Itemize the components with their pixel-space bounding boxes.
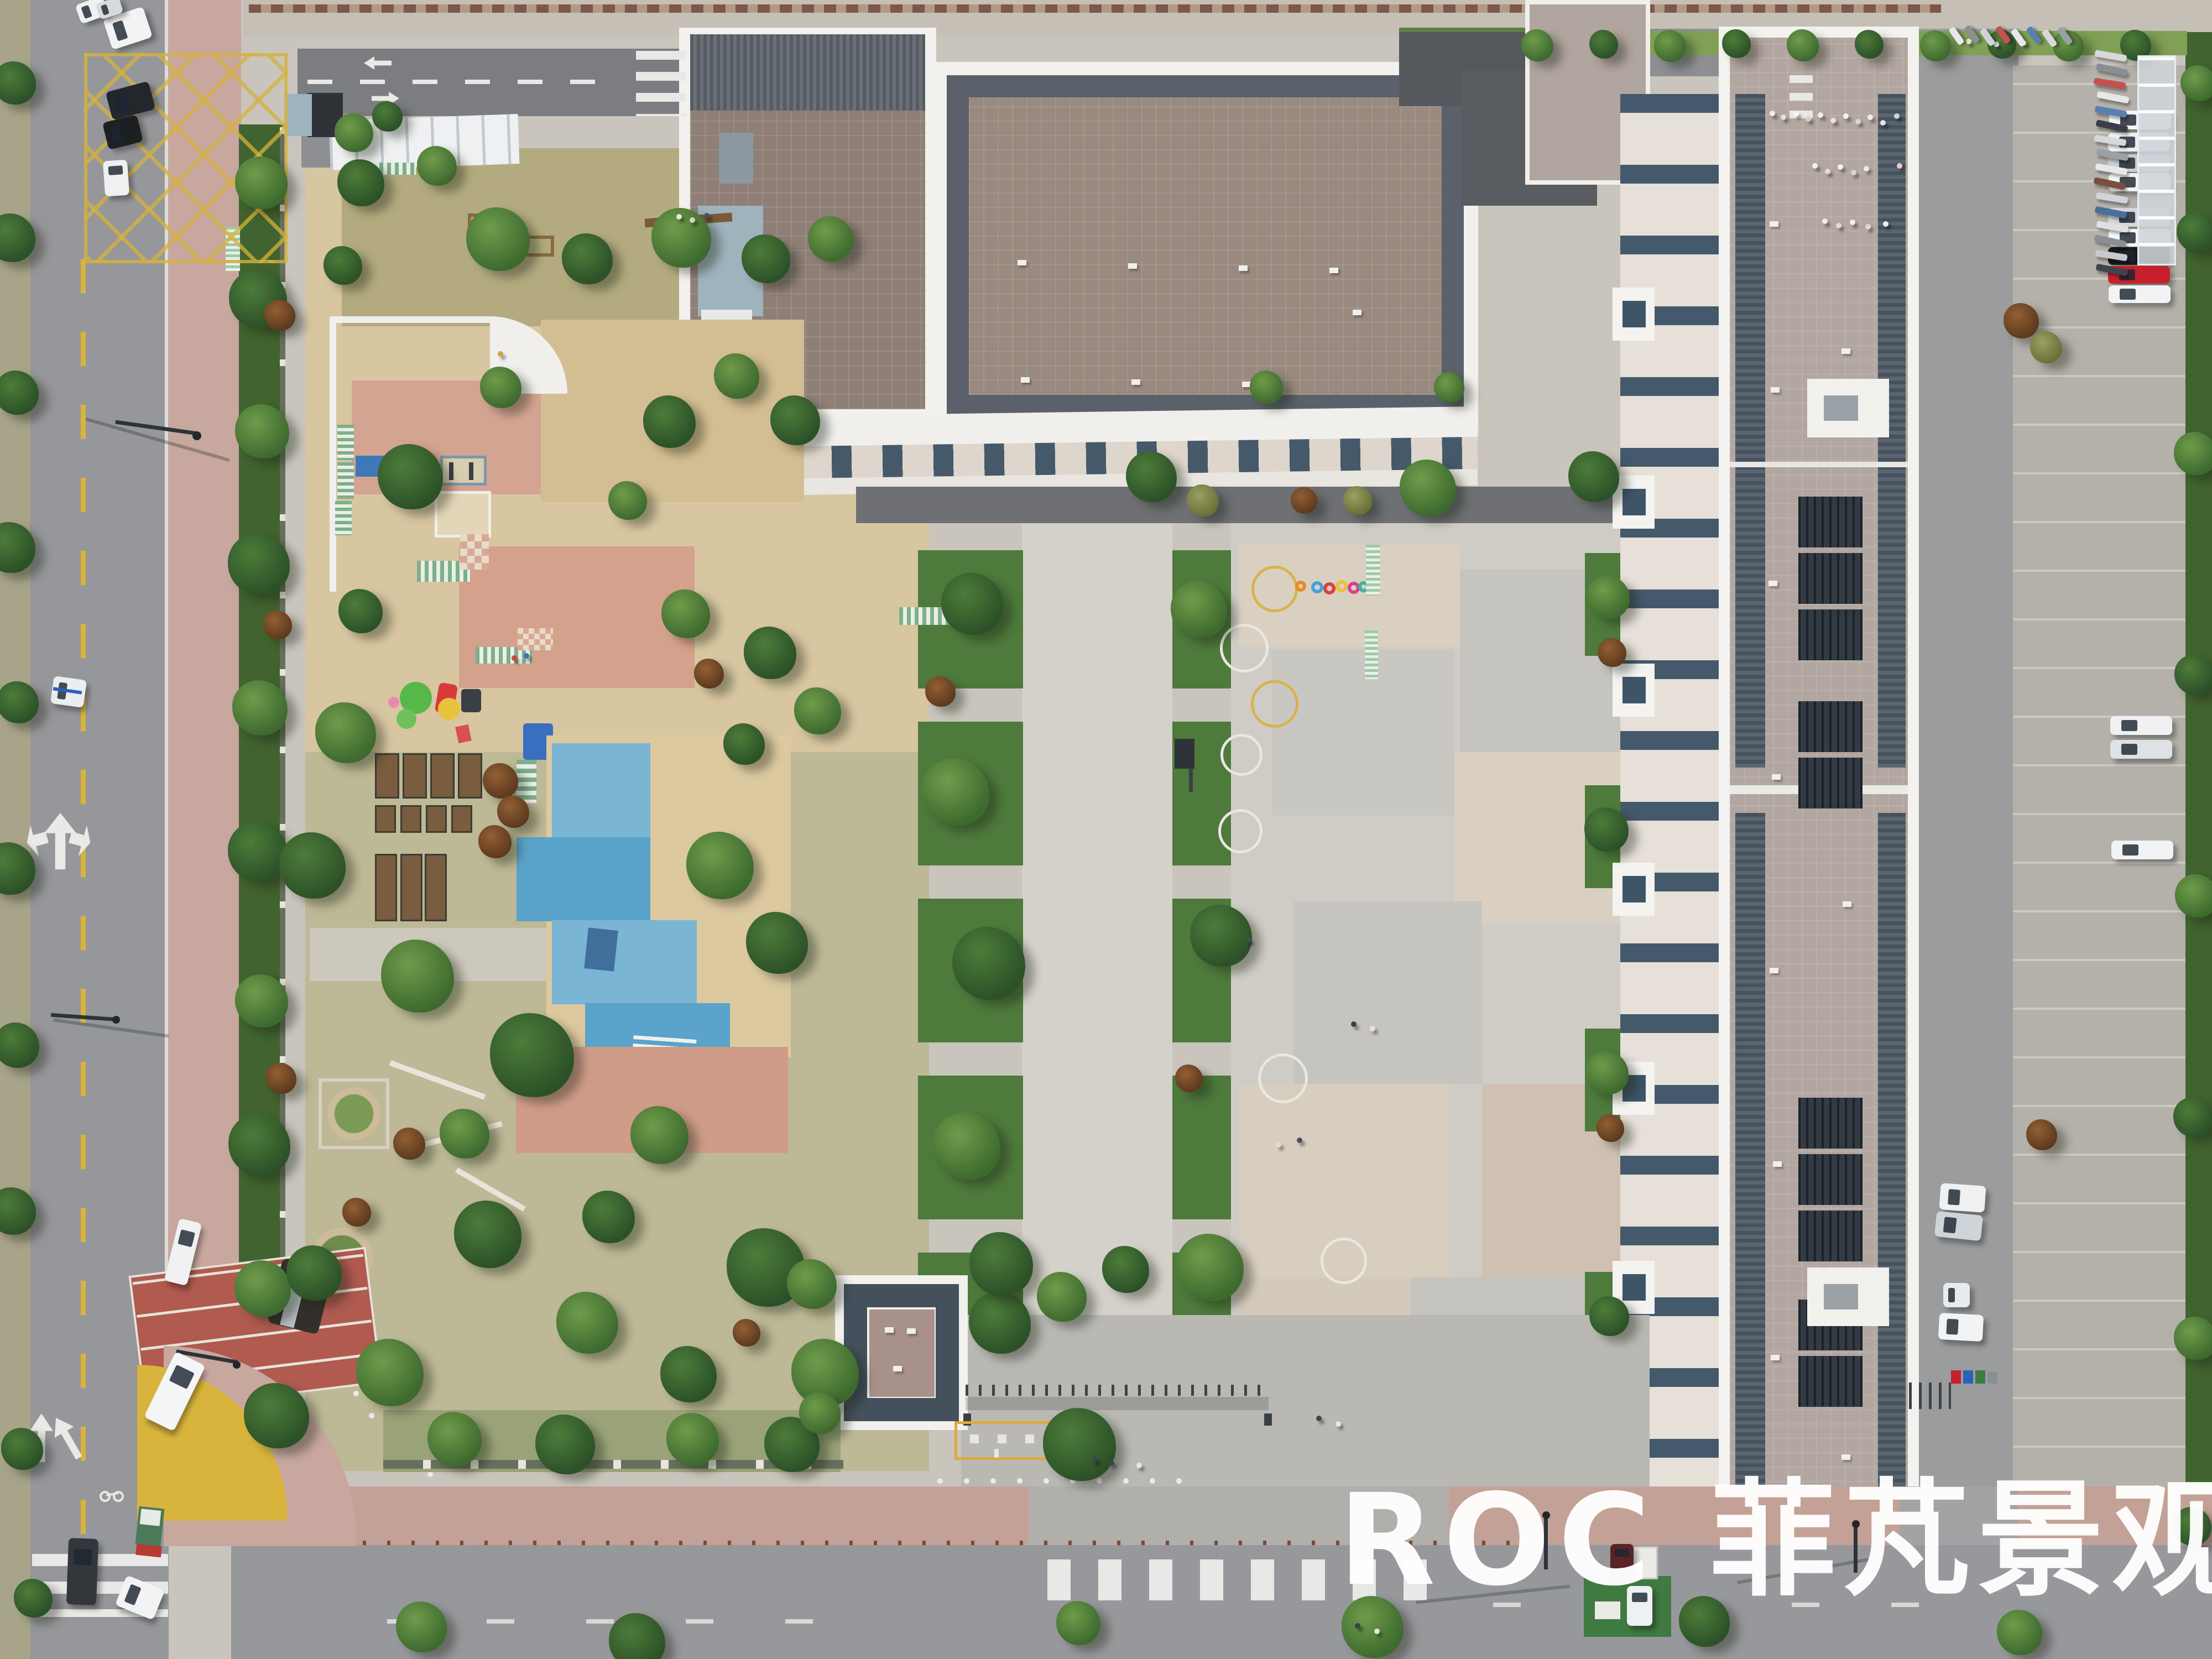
garden-tree <box>440 1109 489 1159</box>
car-windshield <box>124 1584 142 1605</box>
person <box>1880 120 1886 126</box>
car-windshield <box>112 20 128 41</box>
car-windshield <box>108 165 123 175</box>
recycle-bin-green <box>1975 1370 1985 1384</box>
swing-bar <box>449 462 453 480</box>
solar-panel <box>1798 1154 1863 1205</box>
tower-bay-glass <box>1623 876 1646 902</box>
recycle-bin-red <box>1951 1370 1961 1384</box>
car-windshield <box>169 1365 195 1389</box>
striped-mat-roll <box>337 462 354 499</box>
parked-car-white <box>1939 1183 1986 1213</box>
top-road-crossing <box>636 51 686 116</box>
hedge-tree <box>235 974 288 1027</box>
striped-mat-roll <box>379 163 416 175</box>
planter-bed <box>400 805 421 833</box>
child <box>512 655 517 661</box>
parked-car-white <box>2109 285 2171 303</box>
tower-bay-glass <box>1623 489 1646 515</box>
garden-tree <box>417 146 457 186</box>
painted-circle-yellow <box>1251 566 1298 612</box>
person <box>676 214 682 220</box>
person <box>1850 220 1855 225</box>
roof-vent <box>1771 1355 1780 1360</box>
roof-vent <box>1353 310 1361 315</box>
person <box>1351 1021 1357 1027</box>
strip-tree <box>666 1413 719 1465</box>
play-ring-yellow <box>1335 580 1348 592</box>
car-windshield <box>1948 1288 1955 1302</box>
shrub-brown <box>1598 638 1626 667</box>
bollard <box>1123 1478 1129 1484</box>
gate-tree <box>1102 1246 1149 1293</box>
solar-panel <box>1798 701 1863 752</box>
garden-tree <box>742 234 790 283</box>
blue-play-zone <box>552 743 650 838</box>
person <box>1822 218 1828 224</box>
watermark-logo: ROC 菲芃景观 <box>1338 1471 2212 1610</box>
lamp-head <box>233 1361 241 1369</box>
garden-tree <box>324 246 362 285</box>
checker-paving <box>518 628 553 650</box>
person <box>1316 1416 1322 1421</box>
person <box>1865 224 1871 229</box>
car-windshield <box>101 4 109 15</box>
shrub-brown <box>393 1128 425 1160</box>
bollard <box>1150 1478 1155 1484</box>
planter-tree <box>1589 1296 1629 1336</box>
parked-car-white <box>2110 716 2172 735</box>
shrub-brown <box>265 1063 296 1094</box>
shrub-brown <box>263 611 292 639</box>
bike-shelter-canopy <box>2137 55 2176 265</box>
person <box>1092 1457 1098 1463</box>
garden-ring-planting <box>335 1094 373 1133</box>
solar-panel <box>1798 497 1863 547</box>
tower-roof-band <box>1730 462 1908 467</box>
bollard <box>1044 1478 1049 1484</box>
play-ring-red <box>1323 582 1335 594</box>
right-hedge-tree <box>2173 1097 2212 1137</box>
front-path-dark <box>856 487 1635 523</box>
person <box>1864 166 1869 171</box>
top-fence <box>249 4 1941 13</box>
basketball-pole <box>1189 768 1193 792</box>
person <box>1836 223 1841 228</box>
planter-bed <box>403 753 427 799</box>
sandpit <box>435 491 491 538</box>
garden-bush <box>1250 371 1283 404</box>
car-windshield <box>2120 289 2136 299</box>
roof-vent <box>1770 221 1778 227</box>
planter-tree <box>1587 576 1630 619</box>
roof-vent <box>1843 901 1851 907</box>
solar-panel <box>1798 1098 1863 1149</box>
car-windshield <box>178 1229 195 1248</box>
nw-tree <box>335 113 373 152</box>
person <box>1781 114 1786 120</box>
roof-vent <box>1021 377 1030 383</box>
person <box>1851 170 1856 175</box>
garden-tree <box>808 216 853 262</box>
gate-post <box>1264 1413 1272 1426</box>
garden-tree <box>582 1191 635 1243</box>
top-road-dash <box>307 80 597 84</box>
parked-car-silver <box>2110 740 2172 759</box>
roof-vent <box>1128 263 1137 269</box>
person <box>1770 111 1775 116</box>
person <box>1355 1623 1360 1629</box>
parking-bush <box>2026 1119 2057 1150</box>
garden-bush <box>1187 484 1219 517</box>
person <box>1246 937 1251 943</box>
glass-roof <box>284 94 312 136</box>
solar-panel <box>1798 1211 1863 1261</box>
car-windshield <box>109 124 122 143</box>
person <box>1297 1138 1302 1143</box>
hedge-dot <box>1521 29 1553 61</box>
building-A-ridge <box>690 34 925 111</box>
shrub-brown <box>925 676 956 707</box>
solar-panel <box>1798 758 1863 808</box>
tower-bay-glass <box>1623 677 1646 703</box>
marking-glyph <box>1025 1434 1034 1443</box>
plaza-patch <box>1294 901 1482 1084</box>
person <box>1825 169 1830 174</box>
shrub-brown <box>483 763 518 799</box>
garden-tree <box>562 233 613 284</box>
person <box>1276 1142 1281 1147</box>
gate-tree <box>799 1392 841 1434</box>
car-windshield <box>1947 1318 1959 1335</box>
planter-bed <box>375 753 399 799</box>
right-hedge-strip <box>2185 32 2212 1648</box>
roof-vent <box>1770 968 1778 973</box>
green-vent-cylinder <box>1366 545 1380 596</box>
bollard <box>1176 1478 1182 1484</box>
lamp-head <box>112 1016 120 1024</box>
tower-tile-strip <box>1735 94 1765 768</box>
courtyard-tree <box>744 627 796 679</box>
parked-car-white <box>1938 1313 1984 1342</box>
car-windshield <box>2122 844 2138 855</box>
road-tree <box>1056 1601 1100 1645</box>
garden-bush <box>1343 486 1372 515</box>
solar-panel <box>1798 609 1863 660</box>
bollard <box>1017 1478 1022 1484</box>
yellow-center-dash <box>81 259 86 1548</box>
painted-circle-white <box>1258 1053 1308 1103</box>
building-B-roof <box>969 97 1442 395</box>
aerial-photo-scene: ROC 菲芃景观 <box>0 0 2212 1659</box>
planter-bed <box>451 805 472 833</box>
marking-glyph <box>994 1449 999 1458</box>
roof-vent <box>1768 581 1777 586</box>
road-tree <box>1997 1610 2042 1655</box>
marking-glyph <box>998 1434 1006 1443</box>
shrub-brown <box>497 796 529 828</box>
gate-tree <box>1037 1272 1087 1322</box>
play-equip-green <box>397 709 416 729</box>
person <box>1370 1026 1375 1031</box>
play-ring-blue <box>1311 581 1323 593</box>
roof-vent <box>1131 379 1140 385</box>
person <box>1838 164 1843 170</box>
swing-bar <box>469 462 473 480</box>
garden-tree <box>337 159 384 206</box>
garden-bush <box>1434 372 1464 403</box>
courtyard-tree <box>714 353 759 399</box>
boulevard-tree <box>1126 451 1177 502</box>
planter-bed <box>426 805 447 833</box>
courtyard-tree <box>770 395 820 445</box>
striped-canopy <box>517 760 536 803</box>
planter-bed <box>430 753 455 799</box>
green-vent-cylinder <box>1365 630 1378 679</box>
bollard <box>353 1391 359 1396</box>
road-tree <box>396 1601 447 1652</box>
painted-circle-white <box>1220 734 1262 776</box>
courtyard-tree <box>661 589 710 638</box>
painted-circle-yellow <box>1251 680 1298 728</box>
car-windshield <box>2121 720 2137 731</box>
bollard <box>990 1478 996 1484</box>
shrub-brown <box>1597 1114 1624 1142</box>
solar-panel <box>1798 553 1863 604</box>
planter-tree <box>1584 807 1629 852</box>
hedge-dot <box>1654 30 1686 62</box>
courtyard-tree <box>794 687 841 734</box>
shrub-brown <box>1175 1065 1203 1092</box>
car-windshield <box>81 5 92 19</box>
person <box>1335 1421 1341 1427</box>
car-windshield <box>1943 1217 1957 1233</box>
person <box>1894 113 1900 119</box>
gate-shadow <box>966 1397 1269 1410</box>
parking-dividers <box>2013 83 2193 1648</box>
person <box>1843 113 1849 119</box>
person <box>1109 1460 1114 1466</box>
gatehouse-inner-roof <box>869 1310 935 1397</box>
person <box>690 217 695 223</box>
lamp-head <box>192 431 201 440</box>
plaza-patch <box>1272 650 1454 816</box>
recycle-bin-blue <box>1963 1370 1973 1384</box>
gate-tree <box>787 1259 837 1309</box>
tower-tile-strip <box>1878 813 1906 1532</box>
vendor-cart-top <box>140 1509 161 1526</box>
play-equip-table <box>461 689 481 712</box>
roof-vent <box>1772 774 1781 780</box>
person <box>1897 163 1902 169</box>
right-hedge-tree <box>2174 655 2212 695</box>
roof-vent <box>1841 348 1850 354</box>
hedge-dot <box>1787 29 1819 61</box>
solar-panel <box>1798 1356 1863 1407</box>
hedge-dot <box>1855 30 1884 59</box>
courtyard-tree <box>608 481 647 520</box>
person <box>1966 39 1971 44</box>
car-windshield <box>1948 1189 1960 1206</box>
roof-vent <box>1329 268 1338 273</box>
shrub-brown <box>264 300 295 331</box>
nw-tree <box>372 101 403 132</box>
car-windshield <box>74 1549 92 1566</box>
child <box>498 351 503 357</box>
checker-paving <box>460 534 489 570</box>
parked-car-white <box>2111 841 2173 859</box>
boulevard-bed <box>1172 1076 1231 1219</box>
recycle-bin-gray <box>1987 1371 1997 1384</box>
white-boundary-wall <box>330 320 336 592</box>
bollard <box>937 1478 943 1484</box>
tower-bay-glass <box>1623 301 1646 327</box>
play-equip-yellow <box>438 698 460 720</box>
small-truck <box>1943 1283 1970 1307</box>
marking-glyph <box>970 1434 979 1443</box>
painted-circle-white <box>1220 624 1269 672</box>
tower-bay-glass <box>1623 1274 1646 1301</box>
planter-bed <box>400 854 422 921</box>
bollard <box>427 1472 433 1477</box>
person <box>1855 119 1861 124</box>
bike-lane-symbol <box>100 1491 111 1502</box>
parking-bush <box>2030 331 2062 363</box>
hedge-dot <box>1920 30 1951 61</box>
planter-tree <box>1585 1051 1629 1094</box>
bollard <box>369 1413 374 1418</box>
hedge-dot <box>1589 30 1618 59</box>
shrub-brown <box>342 1198 371 1227</box>
blue-play-zone <box>517 837 650 921</box>
street-tree <box>1 1428 43 1470</box>
bollard <box>964 1478 969 1484</box>
hedge-tree <box>235 156 288 209</box>
gatehouse-vent <box>893 1366 902 1371</box>
covered-car <box>1934 1211 1983 1241</box>
person <box>1812 163 1818 169</box>
swing-set <box>440 456 487 486</box>
person <box>1883 221 1888 227</box>
roof-vent <box>1841 1454 1850 1460</box>
roof-vent <box>1773 1161 1782 1167</box>
person <box>1806 116 1811 122</box>
car-white-minivan <box>103 160 129 197</box>
planter-bed <box>375 854 397 921</box>
shrub-brown <box>733 1319 760 1347</box>
white-boundary-wall <box>330 316 493 323</box>
car-windshield <box>2121 744 2137 755</box>
tower-roof-unit-inner <box>1824 395 1858 421</box>
gatehouse-vent <box>885 1327 894 1333</box>
roof-vent <box>1239 265 1248 271</box>
building-A-hvac-unit <box>719 133 753 184</box>
person <box>1793 111 1799 117</box>
courtyard-tree <box>643 395 696 448</box>
car-windshield <box>114 93 130 113</box>
shrub-brown <box>478 825 512 858</box>
person <box>704 213 709 218</box>
bollard <box>1097 1478 1102 1484</box>
person <box>1136 1463 1142 1468</box>
basketball-backboard <box>1175 739 1194 769</box>
person <box>1374 1629 1380 1634</box>
play-ring-orange <box>1295 581 1306 592</box>
child <box>524 653 529 659</box>
gatehouse-vent <box>907 1328 916 1334</box>
play-surface-salmon <box>459 546 695 688</box>
planter-bed <box>458 753 482 799</box>
courtyard-tree <box>480 367 521 408</box>
garden-bush <box>1291 487 1317 514</box>
blue-play-zone <box>552 920 697 1004</box>
painted-circle-white <box>1218 809 1262 853</box>
planter-bed <box>425 854 447 921</box>
striped-mat-roll <box>335 501 352 535</box>
street-tree <box>14 1579 53 1618</box>
tower-tile-strip <box>1735 813 1765 1532</box>
roof-vent <box>1771 387 1780 393</box>
tower-roof-unit-inner <box>1824 1284 1858 1310</box>
courtyard-tree <box>723 723 765 765</box>
painted-circle-white <box>1321 1238 1367 1284</box>
water-feature <box>584 927 618 971</box>
person <box>1818 112 1823 118</box>
boulevard-tree <box>1568 451 1619 502</box>
lane-dashes <box>387 1619 830 1624</box>
hedge-dot <box>1722 29 1751 58</box>
roof-vent <box>1018 260 1026 265</box>
courtyard-tree <box>338 589 383 633</box>
planter-bed <box>375 805 396 833</box>
shrub-brown <box>694 659 724 688</box>
car-dark-suv <box>66 1538 98 1605</box>
person <box>1867 114 1873 120</box>
accordion-gate-right <box>1909 1383 1951 1409</box>
play-equip-pink <box>388 697 399 708</box>
parking-bush <box>2004 303 2039 338</box>
striped-mat-roll <box>337 425 354 460</box>
person <box>1830 118 1836 123</box>
retractable-gate <box>966 1385 1269 1396</box>
